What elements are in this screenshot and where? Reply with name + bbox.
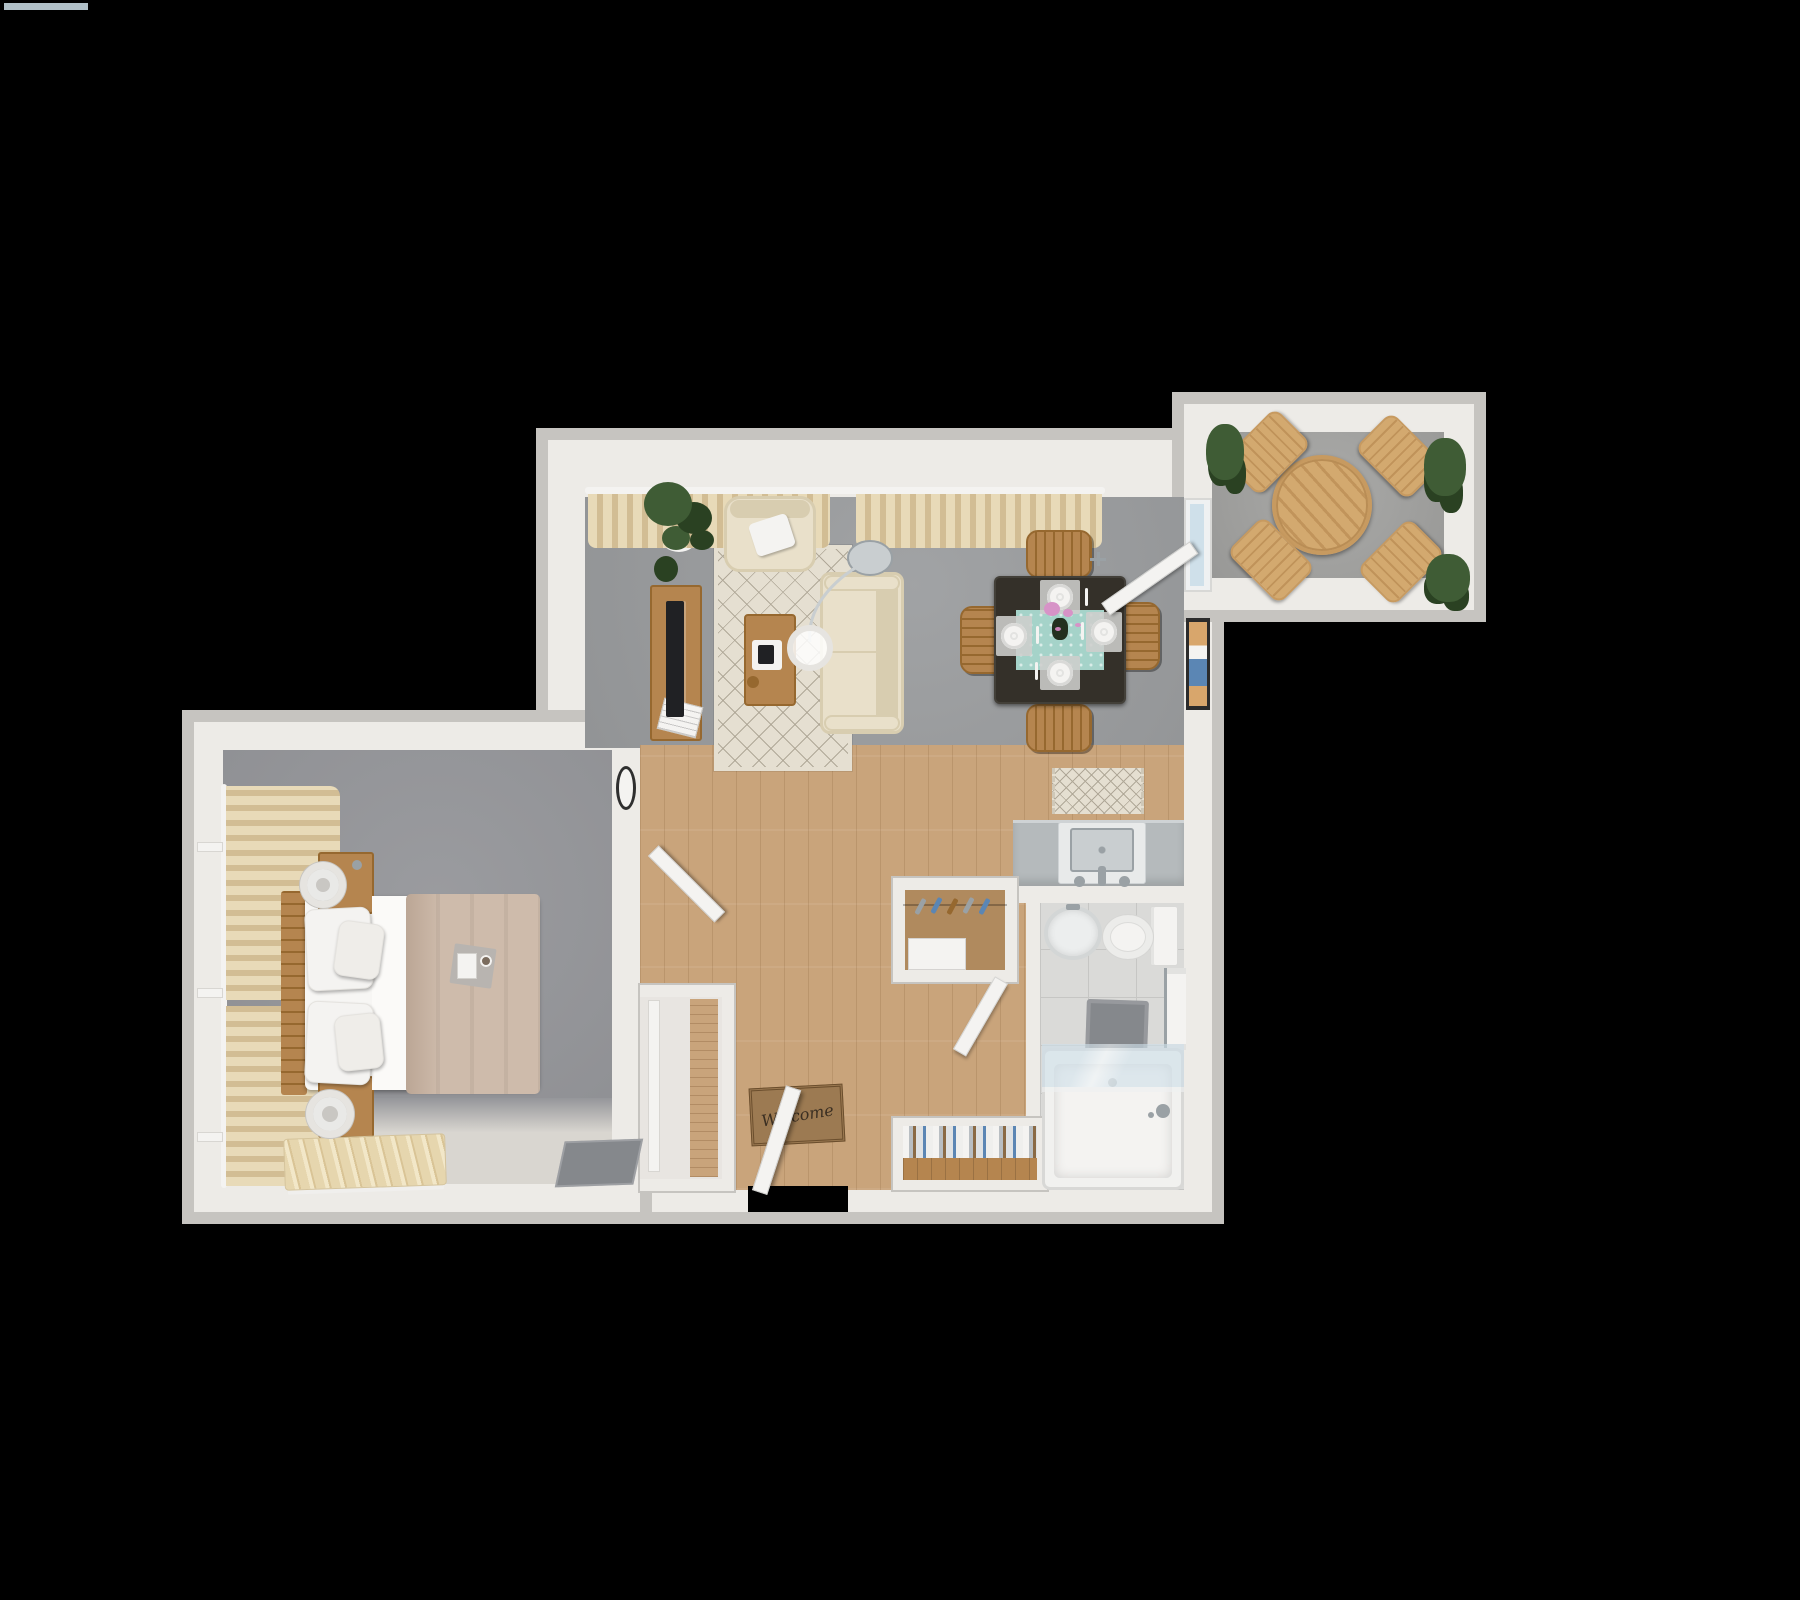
- tv-icon: [666, 601, 684, 717]
- bedroom-floor-mat: [555, 1139, 643, 1188]
- towel-rack: [1164, 968, 1186, 1050]
- toilet-tank: [1150, 906, 1178, 966]
- cutlery-icon: [1081, 622, 1084, 640]
- cutlery-icon: [1036, 626, 1039, 644]
- arc-lamp-graphic: [770, 530, 900, 680]
- closet-back-panel: [690, 999, 718, 1177]
- closet-shelf-unit: [908, 938, 966, 970]
- bathroom-sink: [1044, 906, 1102, 960]
- potted-plant-icon: [1424, 438, 1466, 496]
- cutlery-icon: [1085, 588, 1088, 606]
- dinner-plate-icon: [1047, 660, 1073, 686]
- window-frame-mark: [197, 1132, 223, 1142]
- cutlery-icon: [1035, 662, 1038, 680]
- bedroom-closet-door: [648, 1000, 660, 1172]
- floor-plan: Welcome: [0, 0, 1800, 1600]
- faucet-handle-icon: [1074, 876, 1085, 887]
- kitchen-faucet-icon: [1098, 866, 1106, 886]
- armchair-backrest: [730, 500, 810, 518]
- folded-linens: [903, 1126, 1037, 1158]
- bathroom-top-wall: [1013, 886, 1184, 903]
- flower-centerpiece-icon: [1044, 602, 1060, 616]
- table-lamp-icon: [300, 862, 346, 908]
- toilet-bowl: [1102, 914, 1154, 960]
- arc-floor-lamp: [770, 530, 900, 680]
- potted-plant-icon: [1206, 424, 1244, 480]
- alarm-clock-icon: [352, 860, 362, 870]
- cup-icon: [480, 955, 492, 967]
- accent-pillow: [333, 1012, 385, 1073]
- kitchen-runner-rug: [1052, 768, 1144, 814]
- balcony-door-leaf-glass: [4, 3, 88, 10]
- dinner-plate-icon: [1091, 619, 1117, 645]
- lamp-shade-icon: [790, 628, 830, 668]
- bedroom-doorway: [612, 845, 640, 935]
- glass-shower-screen: [1042, 1044, 1184, 1092]
- accent-pillow: [332, 919, 385, 981]
- vase-icon: [1052, 618, 1068, 640]
- bathroom-faucet-icon: [1066, 904, 1080, 910]
- dining-chair-north: [1026, 530, 1092, 578]
- wall-art-canvas: [1189, 622, 1207, 706]
- window-frame-mark: [197, 988, 223, 998]
- sofa-armrest-bottom: [824, 715, 900, 731]
- decor-bowl-icon: [747, 676, 759, 688]
- door-handle-icon: [1090, 552, 1106, 566]
- table-lamp-icon: [306, 1090, 354, 1138]
- window-frame-mark: [197, 842, 223, 852]
- dinner-plate-icon: [1001, 623, 1027, 649]
- duvet: [406, 894, 540, 1094]
- slatted-bench: [283, 1133, 447, 1191]
- potted-plant-icon: [1426, 554, 1470, 602]
- headboard: [281, 891, 307, 1095]
- linen-shelf: [903, 1158, 1037, 1180]
- book-icon: [457, 953, 477, 979]
- dining-chair-south: [1026, 704, 1092, 752]
- welcome-mat-text: Welcome: [759, 1100, 834, 1130]
- console-plant-icon: [654, 556, 678, 582]
- wall-oval-panel-icon: [616, 766, 636, 810]
- tub-faucet-icon: [1156, 1104, 1170, 1118]
- faucet-handle-icon: [1119, 876, 1130, 887]
- potted-plant-icon: [644, 482, 692, 526]
- screenshot-canvas: Welcome: [0, 0, 1800, 1600]
